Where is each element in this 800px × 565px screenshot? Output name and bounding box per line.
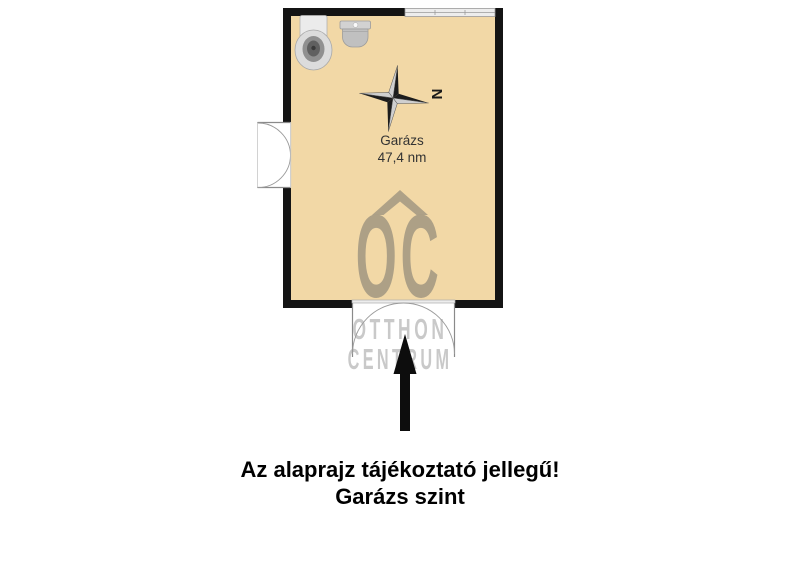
wall-left-upper [283,8,291,122]
floorplan-canvas: OC OTTHON CENTRUM Garázs 47,4 nm N Az al… [0,0,800,565]
wall-left-lower [283,188,291,308]
wall-bottom-left-segment [283,300,352,308]
caption-level: Garázs szint [0,486,800,508]
watermark-logo: OC [299,190,499,300]
sink-icon [340,21,371,47]
watermark-word-centrum: CENTRUM [316,346,484,375]
compass-rose-icon [355,61,434,137]
room-area: 47,4 nm [302,150,502,167]
watermark-logo-letters: OC [354,198,444,300]
caption-disclaimer: Az alaprajz tájékoztató jellegű! [0,459,800,481]
toilet-icon [295,16,332,71]
compass-north-label: N [429,85,445,103]
left-double-door [258,123,291,188]
wall-bottom-right-segment [455,300,503,308]
window [405,9,495,17]
watermark-word-otthon: OTTHON [310,316,490,345]
room-name: Garázs [302,133,502,150]
wall-top-left-segment [283,8,405,16]
